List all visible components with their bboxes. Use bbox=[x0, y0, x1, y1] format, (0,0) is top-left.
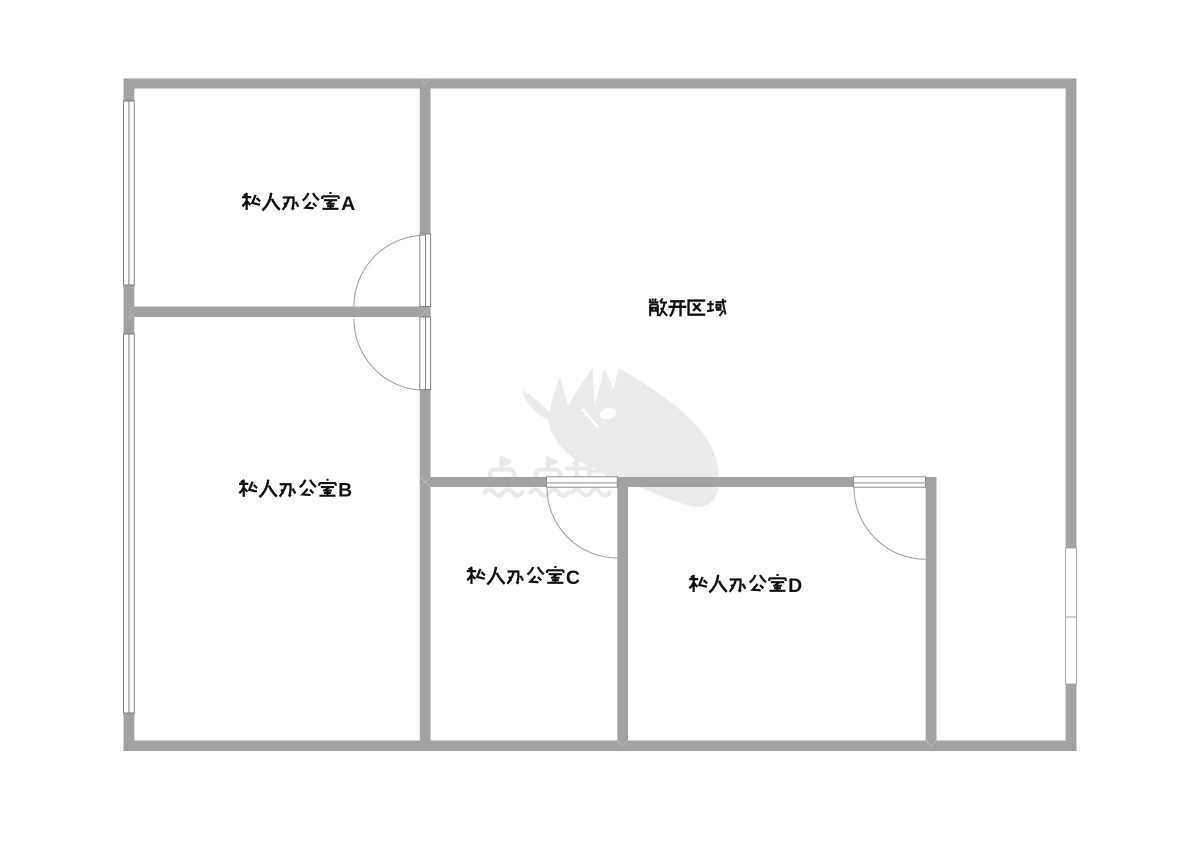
svg-text:A: A bbox=[341, 193, 355, 215]
svg-text:D: D bbox=[788, 575, 802, 597]
svg-text:B: B bbox=[338, 480, 352, 502]
svg-text:C: C bbox=[566, 567, 580, 589]
